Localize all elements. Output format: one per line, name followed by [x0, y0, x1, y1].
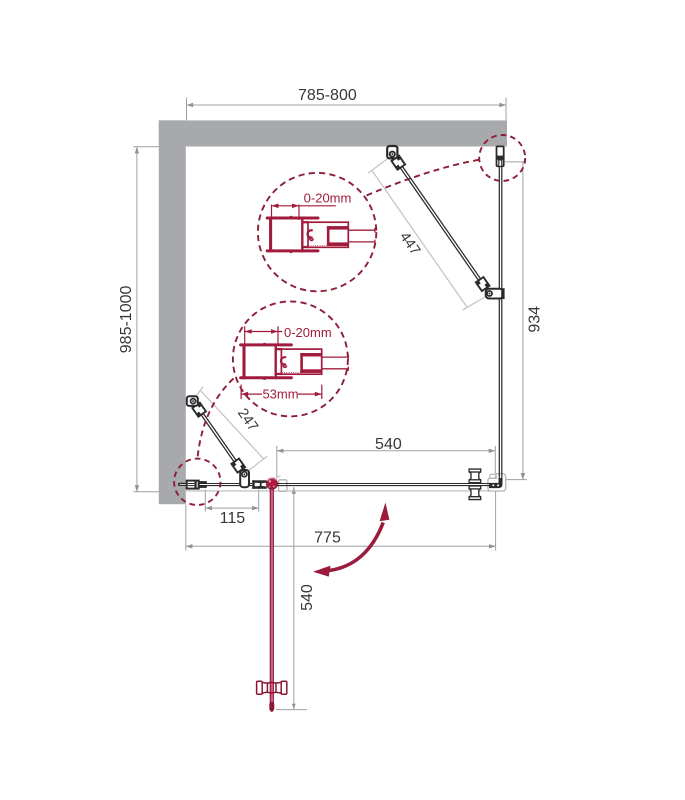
svg-text:934: 934	[527, 306, 544, 333]
svg-text:0-20mm: 0-20mm	[304, 191, 352, 206]
svg-text:785-800: 785-800	[298, 87, 357, 104]
svg-text:775: 775	[314, 530, 341, 547]
svg-text:985-1000: 985-1000	[118, 285, 135, 353]
svg-text:53mm: 53mm	[262, 387, 298, 402]
svg-text:115: 115	[220, 510, 246, 527]
svg-text:447: 447	[396, 229, 423, 258]
svg-text:0-20mm: 0-20mm	[284, 325, 332, 340]
svg-text:540: 540	[375, 436, 402, 453]
svg-text:540: 540	[299, 584, 316, 611]
